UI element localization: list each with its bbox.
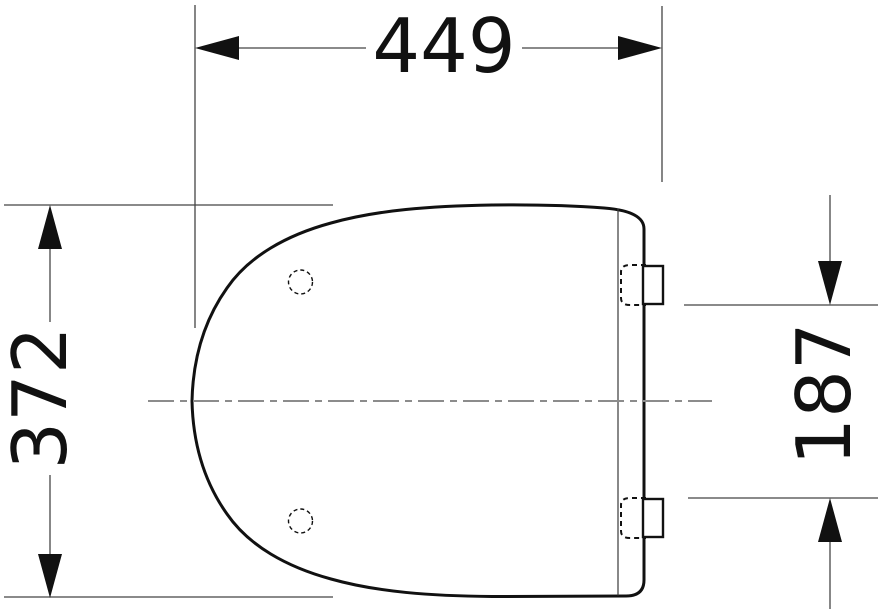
arrow-down-icon	[38, 554, 62, 598]
dimension-width-label: 449	[372, 2, 515, 90]
technical-drawing: 449 372 187	[0, 0, 883, 610]
technical-drawing-canvas: 449 372 187	[0, 0, 883, 610]
hinge-bottom-tab	[643, 499, 663, 537]
hinge-top-tab	[643, 266, 663, 304]
arrow-left-icon	[195, 36, 239, 60]
dimension-depth-label: 372	[0, 326, 84, 469]
arrow-up-icon	[818, 498, 842, 542]
arrow-down-icon	[818, 261, 842, 305]
arrow-right-icon	[618, 36, 662, 60]
dimension-hinge-spacing-label: 187	[780, 322, 868, 465]
dimension-hinge-spacing: 187	[684, 195, 878, 609]
arrow-up-icon	[38, 205, 62, 249]
